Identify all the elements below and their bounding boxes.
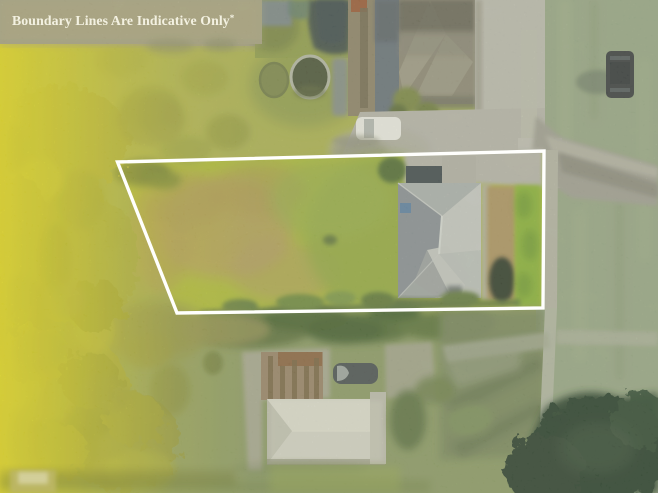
svg-text:Boundary Lines Are Indicative: Boundary Lines Are Indicative Only* [12,13,235,28]
